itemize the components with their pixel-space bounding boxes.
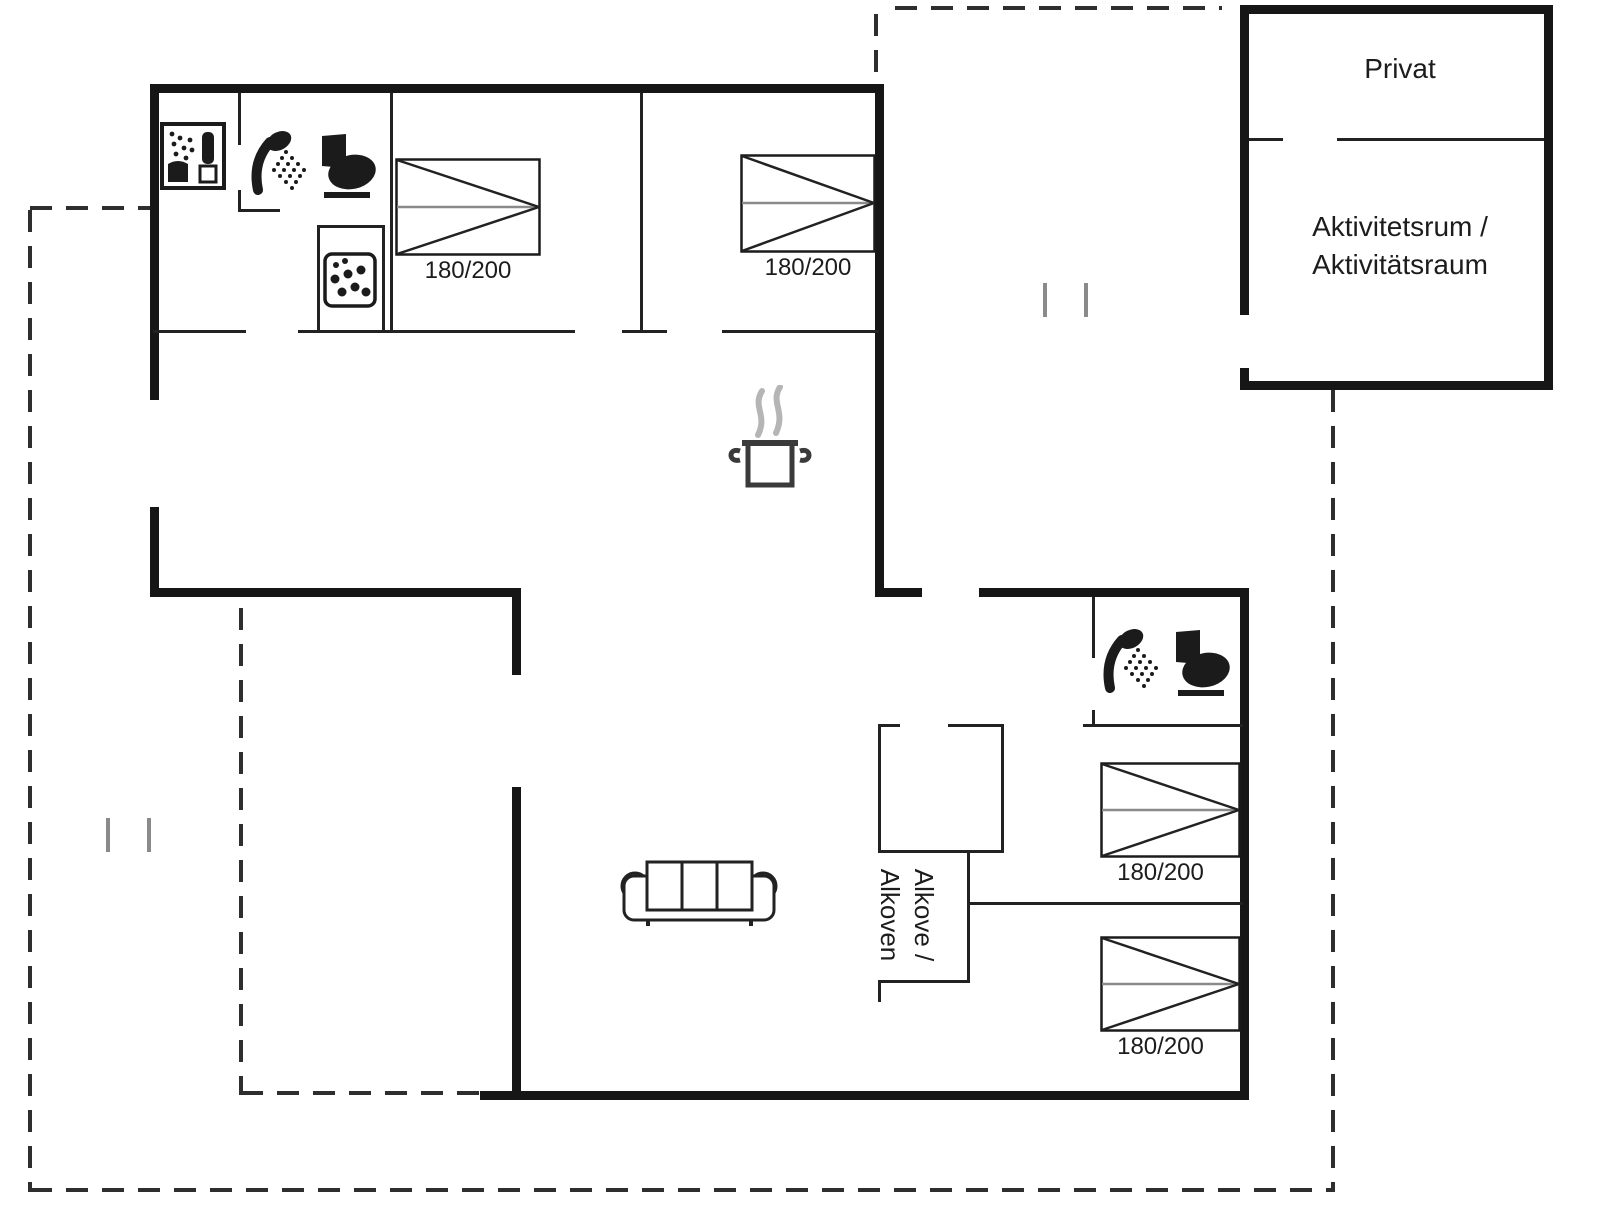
opening-tick xyxy=(147,818,151,852)
wall-alcove-right xyxy=(1001,724,1004,853)
room-label-activity-line2: Aktivitätsraum xyxy=(1252,248,1548,282)
wall-bedblock-east xyxy=(1240,588,1249,1100)
dashed-terrace-inner-v xyxy=(239,608,243,1095)
wall-alcove-left xyxy=(878,724,881,853)
wall-middle-vertical xyxy=(875,84,884,597)
wall-bedroom1-west xyxy=(390,93,393,333)
dashed-courtyard-top xyxy=(895,6,1222,10)
wall-corridor-3 xyxy=(622,330,667,333)
room-label-activity-line1: Aktivitetsrum / xyxy=(1252,210,1548,244)
wall-bedblock-north xyxy=(979,588,1249,597)
wall-annex-west-a xyxy=(1240,5,1249,315)
sofa-icon xyxy=(618,856,780,928)
dashed-boundary-left xyxy=(28,210,32,1192)
double-bed xyxy=(395,158,541,256)
double-bed xyxy=(1100,936,1241,1032)
toilet-icon xyxy=(316,132,378,204)
floor-plan: 180/200 180/200 180/200 180/200 Privat A… xyxy=(0,0,1606,1205)
stove-hob-icon xyxy=(322,246,378,312)
bed-size-label: 180/200 xyxy=(395,258,541,284)
double-bed xyxy=(1100,762,1241,858)
bed-size-label: 180/200 xyxy=(740,255,876,281)
room-label-alcove-line2: Alkoven xyxy=(873,835,907,995)
wall-bathroom-east-a xyxy=(238,93,241,145)
shower-icon xyxy=(248,128,314,200)
cooking-pot-icon xyxy=(722,385,818,491)
wall-annex-divider-b xyxy=(1337,138,1544,141)
wall-bathroom-south xyxy=(238,209,280,212)
wall-corridor-4 xyxy=(722,330,879,333)
dashed-boundary-right xyxy=(1331,390,1335,1192)
wall-living-west-a xyxy=(512,597,521,675)
room-label-alcove: Alkove / Alkoven xyxy=(869,835,941,995)
dashed-courtyard-stub xyxy=(874,14,878,84)
opening-tick xyxy=(1043,283,1047,317)
washing-machine-icon xyxy=(160,122,226,190)
wall-living-west-b xyxy=(512,787,521,1100)
dashed-terrace-inner-h xyxy=(241,1091,480,1095)
dashed-boundary-bottom xyxy=(30,1188,1333,1192)
wall-alcove-mid xyxy=(967,853,970,983)
wall-hob-left xyxy=(317,225,320,330)
wall-bedroom-divider xyxy=(640,93,643,333)
wall-entry-south xyxy=(150,588,521,597)
wall-alcove-top-a xyxy=(878,724,900,727)
wall-annex-divider-a xyxy=(1249,138,1283,141)
wall-annex-south xyxy=(1240,381,1553,390)
wall-bedrooms-divider xyxy=(967,902,1243,905)
wall-outer-bottom xyxy=(480,1091,1249,1100)
opening-tick xyxy=(106,818,110,852)
wall-bath2-west-a xyxy=(1092,597,1095,658)
wall-annex-east xyxy=(1544,5,1553,390)
room-label-alcove-line1: Alkove / xyxy=(907,835,941,995)
wall-hob-top xyxy=(317,225,385,228)
wall-alcove-top-b xyxy=(948,724,1004,727)
double-bed xyxy=(740,154,876,253)
shower-icon xyxy=(1100,626,1166,698)
wall-outer-top xyxy=(150,84,884,93)
dashed-boundary-top-left xyxy=(30,206,150,210)
wall-hob-right xyxy=(382,225,385,330)
toilet-icon xyxy=(1170,628,1232,702)
wall-corridor-1 xyxy=(153,330,246,333)
wall-middle-stub xyxy=(875,588,922,597)
bed-size-label: 180/200 xyxy=(1090,1034,1231,1060)
bed-size-label: 180/200 xyxy=(1090,860,1231,886)
wall-annex-north xyxy=(1240,5,1553,14)
opening-tick xyxy=(1084,283,1088,317)
wall-corridor-2 xyxy=(298,330,575,333)
wall-west-lower xyxy=(150,507,159,597)
wall-bath2-south xyxy=(1083,724,1243,727)
room-label-privat: Privat xyxy=(1300,52,1500,86)
wall-west-upper xyxy=(150,84,159,400)
